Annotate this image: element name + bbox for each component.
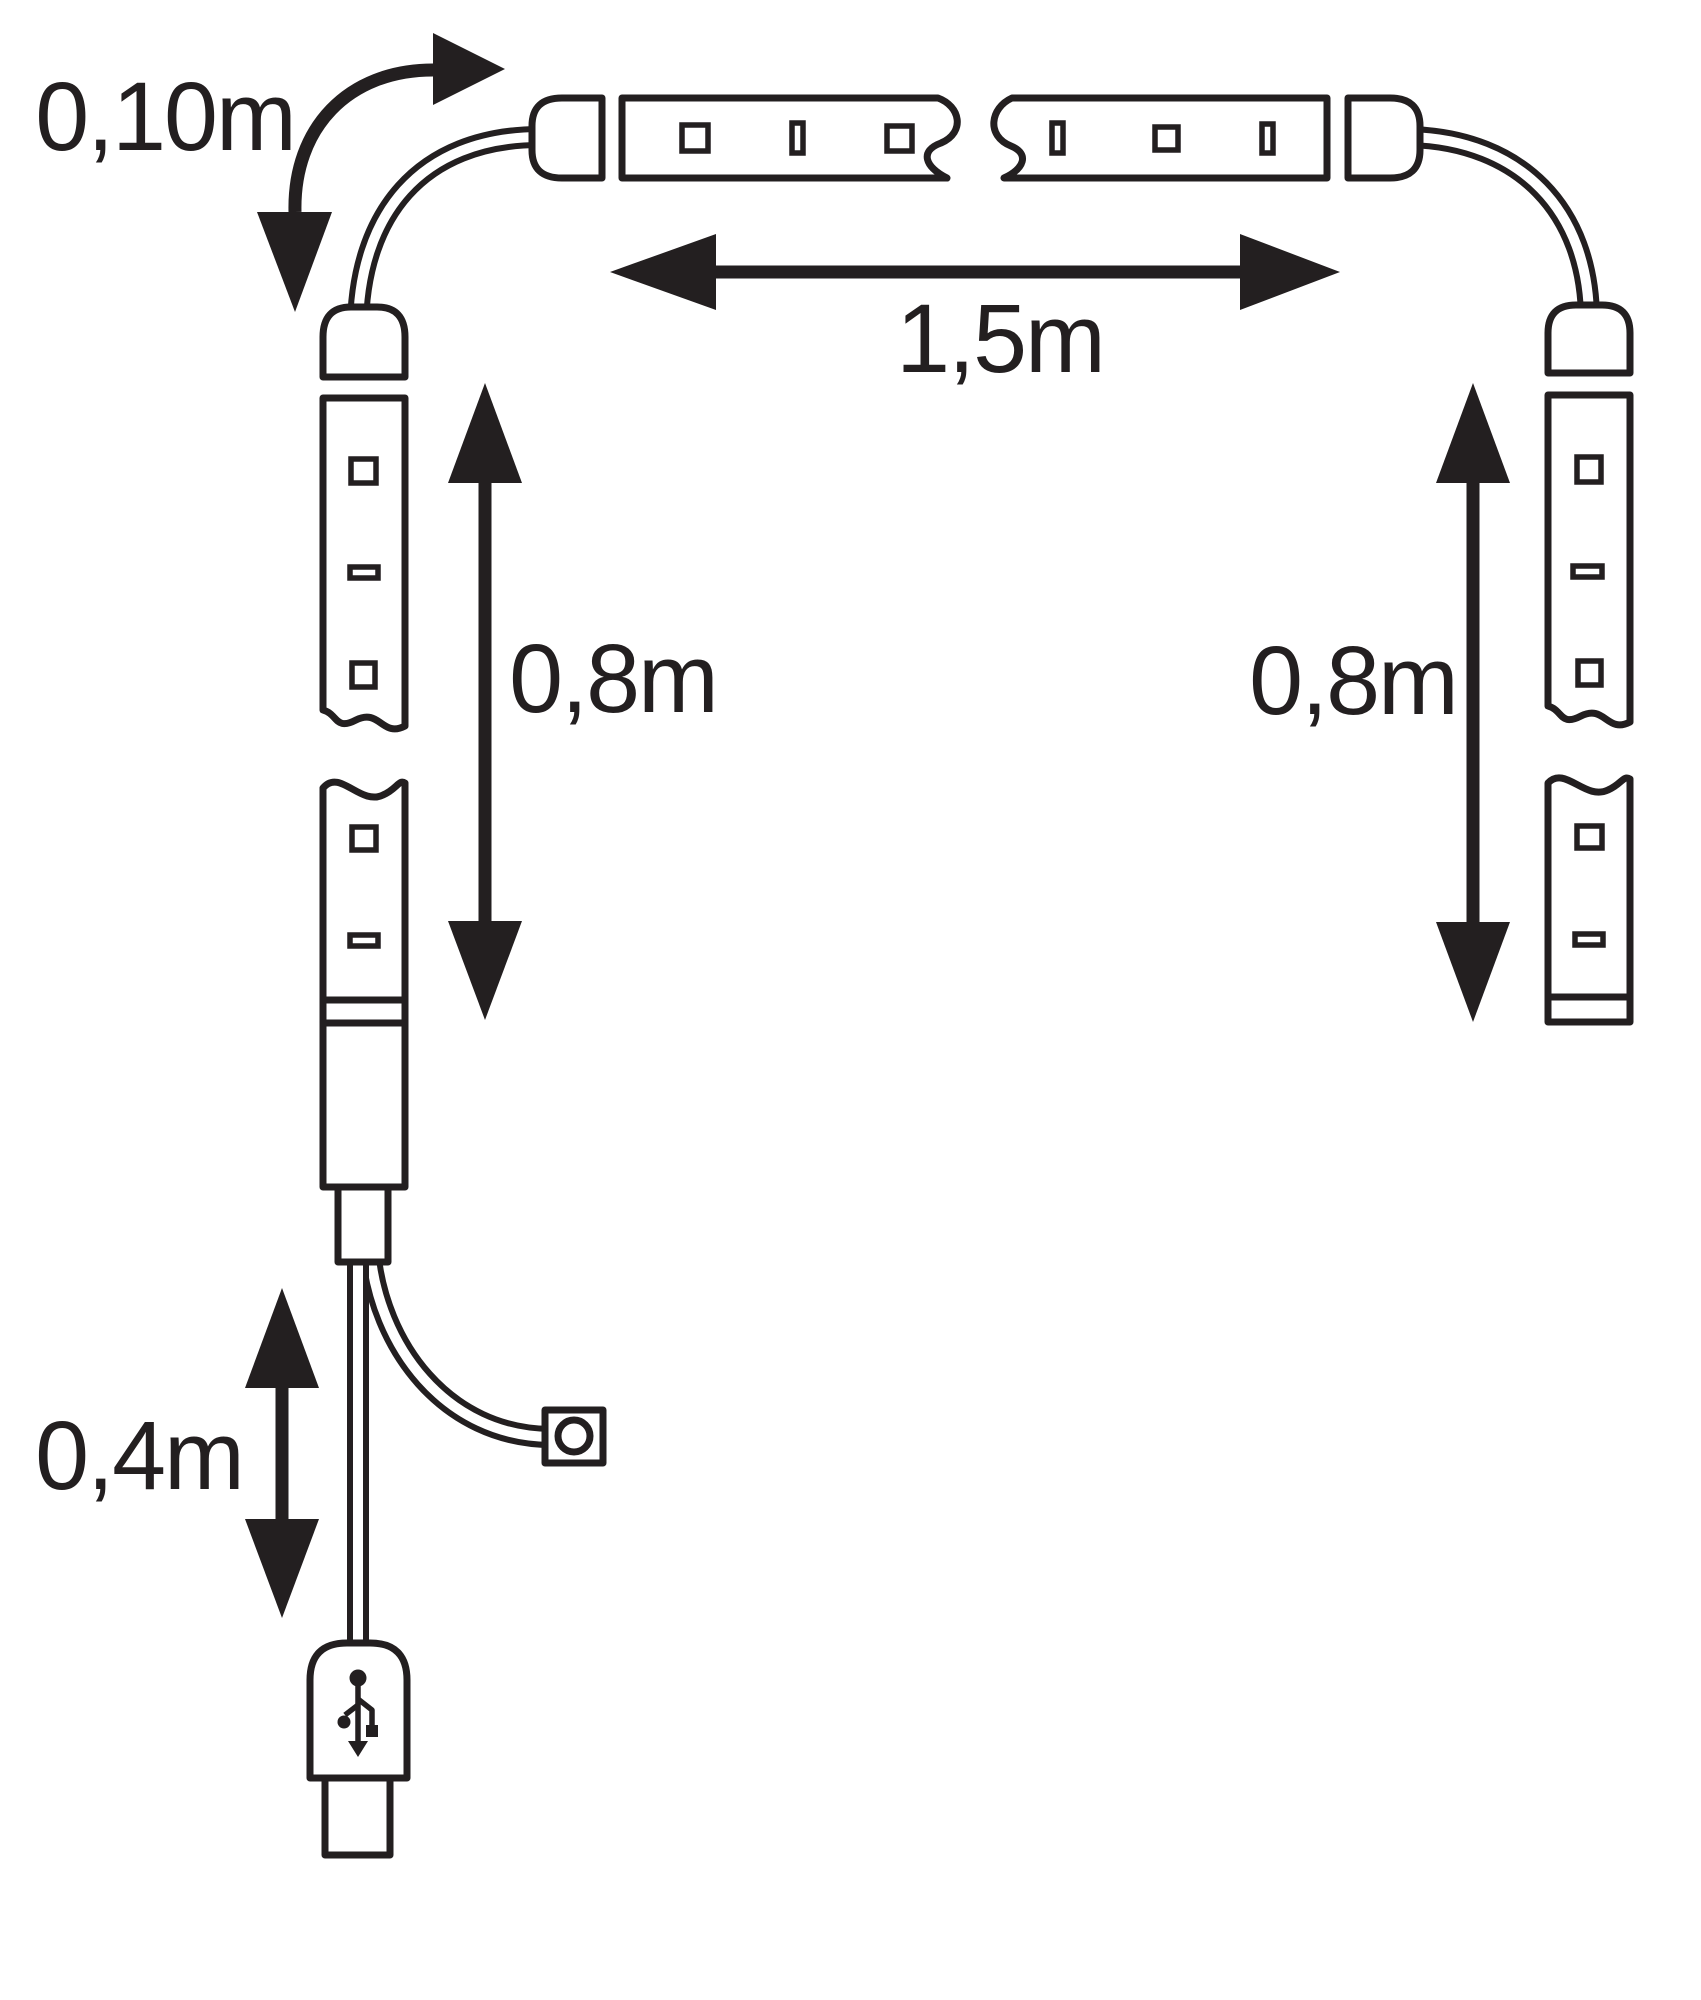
dimension-arrow-usb-cable [245,1288,319,1618]
top-strip-right-connector-cap [1348,98,1420,178]
label-usb-cable-length: 0,4m [35,1401,243,1510]
usb-icon-circle-end [338,1716,351,1729]
label-connector-cable-length: 0,10m [35,62,295,171]
cable-outer [1410,137,1589,320]
led-slot [1575,934,1603,945]
top-strip [532,98,1420,178]
right-strip-end-band [1548,997,1630,1022]
left-strip [323,307,405,1262]
label-left-strip-length: 0,8m [509,624,717,733]
right-strip [1548,305,1630,1022]
cable-left-strip-to-top-strip [358,137,540,330]
led-strip-dimension-diagram: 0,10m 1,5m 0,8m 0,8m 0,4m [0,0,1701,2000]
arrow-head-down [1436,922,1510,1022]
led-slot [1262,124,1273,153]
right-strip-segment-lower [1548,778,1630,997]
led-slot [350,567,378,578]
led-square [1577,457,1601,482]
top-strip-left-connector-cap [532,98,602,178]
led-square [352,663,375,687]
led-square [1578,661,1601,685]
usb-icon-square-end [366,1725,378,1737]
diagram-canvas: 0,10m 1,5m 0,8m 0,8m 0,4m [0,0,1701,2000]
usb-icon-root-dot [350,1670,367,1687]
led-square [1155,127,1178,150]
arrow-head-right [1240,234,1340,310]
arrow-head-right [433,33,505,105]
led-square [351,459,376,483]
led-slot [792,123,803,153]
left-strip-controller-body [323,1023,405,1187]
left-strip-top-connector-cap [323,307,405,377]
led-slot [1052,123,1063,153]
led-square [682,125,708,151]
led-slot [350,935,378,946]
arrow-head-up [1436,383,1510,483]
led-square [1577,826,1602,848]
cable-outer [358,137,540,330]
cable-top-strip-to-right-strip [1410,137,1589,320]
round-switch-icon [558,1420,590,1452]
cable-inner [370,1250,552,1437]
arrow-head-left [610,234,716,310]
left-strip-plug [338,1187,388,1262]
arrow-head-up [448,383,522,483]
label-top-strip-length: 1,5m [896,284,1104,393]
inline-switch [545,1410,603,1463]
right-strip-top-connector-cap [1548,305,1630,373]
led-slot [1573,566,1602,577]
left-strip-segment-lower [323,782,405,1000]
led-square [887,126,912,151]
arrow-head-up [245,1288,319,1388]
led-square [352,827,376,850]
usb-plug-metal [325,1778,390,1855]
usb-plug [310,1643,407,1855]
arrow-head-down [257,212,332,312]
cable-plug-to-switch [370,1250,552,1437]
arrow-head-down [245,1519,319,1618]
label-right-strip-length: 0,8m [1249,626,1457,735]
arrow-head-down [448,921,522,1020]
